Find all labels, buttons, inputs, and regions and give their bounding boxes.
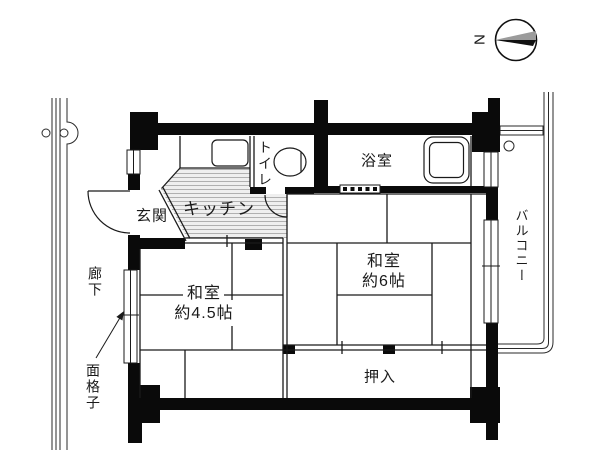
room-label-balcony: バルコニー [515, 209, 528, 284]
wall-left-c [128, 363, 140, 385]
toilet-bowl [274, 148, 306, 176]
wall-toilet-bottom-left [250, 187, 266, 194]
label-corridor: 廊下 [88, 266, 102, 298]
bathtub [424, 137, 469, 183]
window-bathroom [484, 152, 498, 187]
window-grate-window [122, 270, 139, 363]
pillar-bottom-right [470, 387, 500, 423]
pillar-bottom-left [128, 385, 160, 423]
wall-bath-bottom-right [380, 186, 486, 193]
room-size-washitsu6: 約6帖 [362, 274, 406, 290]
room-label-washitsu45: 和室 [187, 286, 221, 302]
room-label-kitchen: キッチン [183, 201, 255, 218]
compass-north-label: N [472, 34, 487, 46]
pipe-circle [60, 129, 68, 137]
balcony-partition [500, 126, 543, 135]
window-entry-side [127, 150, 140, 174]
wall-genkan-bottom [140, 238, 185, 249]
compass [495, 20, 537, 61]
pipe-circle [42, 129, 50, 137]
pillar-top-right [472, 112, 500, 152]
balcony-drain [504, 141, 514, 151]
entry-door [88, 191, 130, 233]
room-size-washitsu45: 約4.5帖 [174, 306, 233, 322]
wall-toilet-bath [314, 100, 328, 193]
window-grate-leader [96, 311, 124, 358]
pillar-top-left [130, 112, 158, 150]
pillar-kitchen-bottom [245, 239, 262, 250]
label-window-grate: 面格子 [86, 363, 100, 411]
wall-left-a [128, 174, 140, 190]
room-label-genkan: 玄関 [136, 209, 168, 224]
window-balcony [482, 220, 500, 323]
wall-right-a [486, 187, 498, 220]
wall-bottom [157, 398, 486, 410]
wall-bath-bottom-left [328, 186, 340, 193]
room-label-bathroom: 浴室 [361, 154, 393, 169]
kitchen-sink [212, 140, 248, 166]
room-label-toilet: トイレ [258, 140, 272, 188]
common-corridor-rail [42, 98, 78, 450]
floor-plan-image: 玄関 キッチン トイレ 浴室 和室 約6帖 和室 約4.5帖 押入 バルコニー … [0, 0, 600, 450]
wall-toilet-bottom-right [285, 187, 314, 194]
room-label-oshiire: 押入 [364, 370, 396, 385]
wall-left-b [128, 235, 140, 270]
bathroom-door [340, 185, 380, 193]
room-label-washitsu6: 和室 [367, 254, 401, 270]
